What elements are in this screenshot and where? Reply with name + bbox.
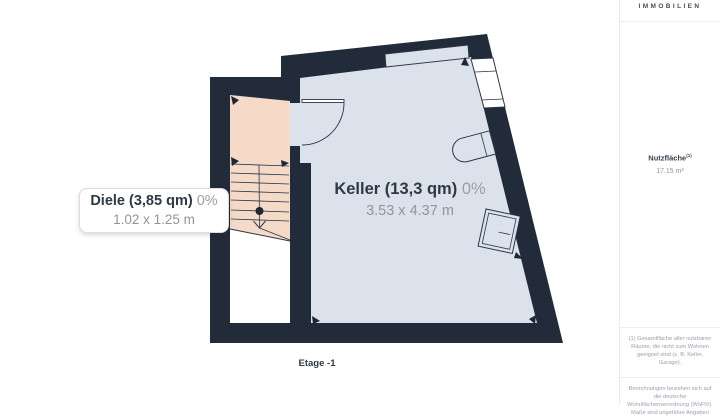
footnote-calculation: Berechnungen beziehen sich auf die deuts… [620,377,720,417]
brand-logo: IMMOBILIEN [620,0,720,22]
room-percent: 0% [197,193,218,209]
sidebar: IMMOBILIEN Nutzfläche(1) 17.15 m² (1) Ge… [619,0,720,405]
floor-label: Etage -1 [277,358,357,369]
room-label-diele: Diele (3,85 qm) 0% 1.02 x 1.25 m [79,188,229,233]
room-dimensions-diele: 1.02 x 1.25 m [113,212,195,228]
stair-start-dot [256,207,264,215]
room-title: Keller (13,3 qm) [334,180,457,198]
footnote-marker: (1) [686,153,692,158]
usable-area-summary: Nutzfläche(1) 17.15 m² [620,153,720,175]
floorplan-canvas: Keller (13,3 qm) 0% 3.53 x 4.37 m Diele … [0,0,620,405]
usable-area-label: Nutzfläche(1) [620,153,720,163]
room-name-keller: Keller (13,3 qm) 0% [300,179,520,200]
room-percent: 0% [462,180,486,198]
room-title: Diele (3,85 qm) [90,193,192,209]
usable-area-value: 17.15 m² [620,168,720,175]
understair-void [230,229,290,323]
footnote-area-definition: (1) Gesamtfläche aller nutzbaren Räume, … [620,327,720,367]
room-name-diele: Diele (3,85 qm) 0% [90,193,217,210]
door-opening [290,103,302,146]
room-label-keller: Keller (13,3 qm) 0% 3.53 x 4.37 m [300,179,520,220]
usable-area-text: Nutzfläche [648,154,686,163]
room-dimensions-keller: 3.53 x 4.37 m [300,202,520,220]
